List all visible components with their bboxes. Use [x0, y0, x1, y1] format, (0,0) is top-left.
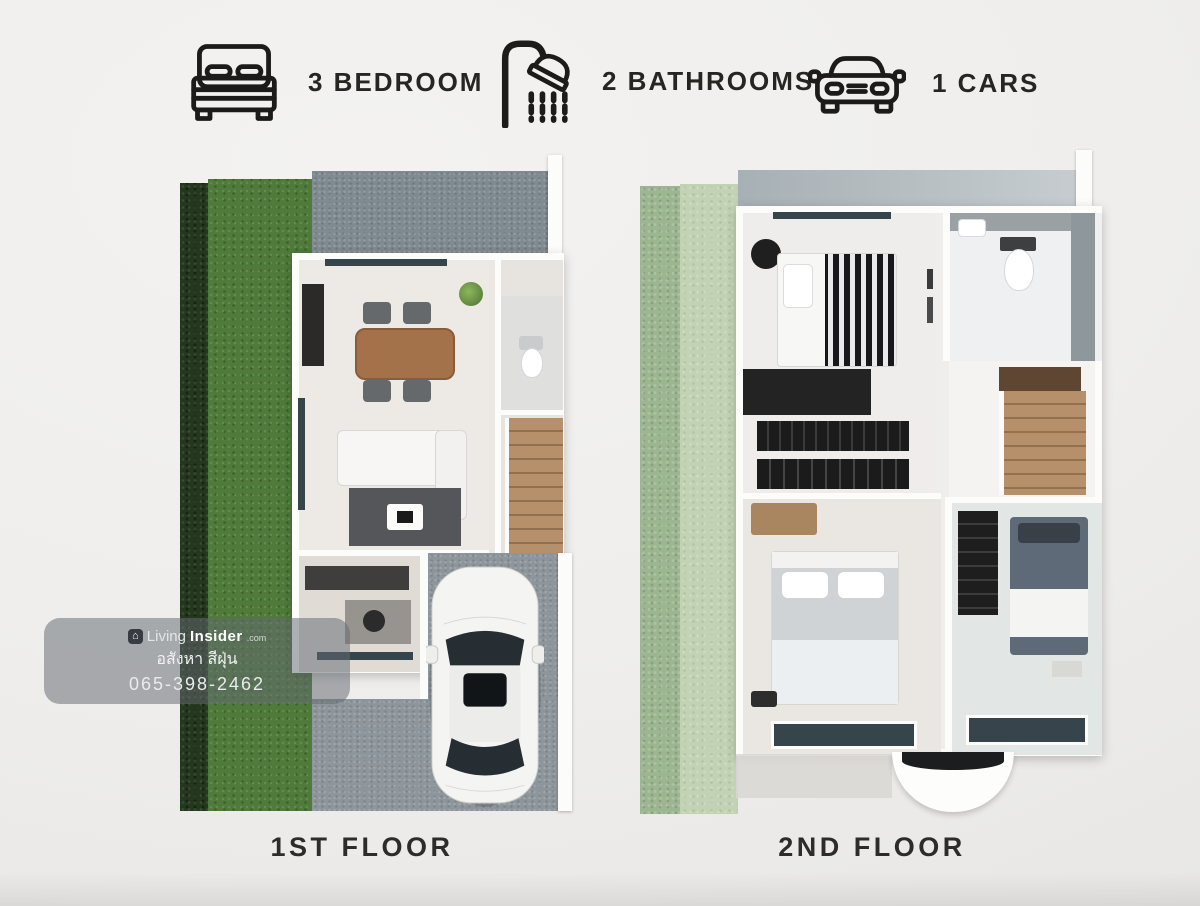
stairwell [949, 361, 1095, 497]
toilet [521, 348, 543, 378]
bedrooms-label: 3 BEDROOM [308, 67, 483, 98]
canopy-arc [902, 752, 1004, 770]
blanket [1010, 589, 1088, 637]
bathroom-2 [943, 213, 1102, 361]
feature-bathrooms: 2 BATHROOMS [494, 34, 814, 128]
kitchen-counter [305, 566, 409, 590]
pillow [838, 572, 884, 598]
bench [751, 691, 777, 707]
master-floor-window [771, 721, 917, 749]
dining-table [355, 328, 455, 380]
house-second-floor [736, 206, 1102, 756]
watermark: ⌂ Living Insider .com อสังหา สีฝุ่น 065-… [44, 618, 350, 704]
car-top-view [426, 561, 544, 811]
master-bed [771, 551, 899, 705]
closet-row [757, 459, 909, 489]
bed-striped-duvet [777, 253, 897, 367]
stair-landing [999, 367, 1081, 393]
shower-icon [494, 34, 576, 128]
wardrobe-dark [743, 369, 871, 415]
duvet [772, 640, 898, 704]
feature-cars: 1 CARS [808, 48, 1039, 118]
faded-lawn [680, 184, 738, 814]
staircase-1 [505, 418, 563, 566]
vanity [751, 503, 817, 535]
cars-label: 1 CARS [932, 68, 1039, 99]
wall-frame [927, 269, 933, 289]
pillow-dark [1018, 523, 1080, 543]
headboard [772, 552, 898, 568]
pillow [782, 572, 828, 598]
faded-hedge-strip [640, 186, 680, 814]
wardrobe-3 [958, 511, 998, 615]
livinginsider-logo-icon: ⌂ [128, 629, 143, 644]
bath-wall-right [1071, 213, 1095, 361]
first-floor-plan [180, 155, 592, 815]
dining-chair [403, 380, 431, 402]
side-cabinet [1052, 661, 1082, 677]
living-room [299, 260, 489, 550]
entrance-canopy [892, 752, 1014, 812]
toilet-2 [1004, 249, 1034, 291]
watermark-brand: ⌂ Living Insider .com [128, 628, 266, 645]
brand-living: Living [147, 628, 186, 645]
bedroom3-floor-window [966, 715, 1088, 745]
walk-in-closet [743, 419, 935, 493]
staircase-2 [999, 391, 1086, 495]
watermark-phone: 065-398-2462 [129, 674, 265, 695]
second-floor-caption: 2ND FLOOR [742, 832, 1002, 863]
bathroom-1 [501, 296, 563, 415]
plant [459, 282, 483, 306]
wall-frame [927, 297, 933, 323]
window-left [298, 398, 305, 510]
desk-chair [363, 610, 385, 632]
dining-chair [363, 380, 391, 402]
watermark-subtitle: อสังหา สีฝุ่น [156, 647, 237, 672]
brand-insider: Insider [190, 628, 243, 645]
bathrooms-label: 2 BATHROOMS [602, 66, 814, 97]
first-floor-caption: 1ST FLOOR [232, 832, 492, 863]
bedroom-3 [945, 497, 1102, 755]
bed-3 [1010, 517, 1088, 655]
car-icon [808, 48, 906, 118]
bedroom-2 [743, 213, 935, 419]
tv-cabinet [302, 284, 324, 366]
dining-chair [363, 302, 391, 324]
page-canvas: 3 BEDROOM 2 BATHROOMS 1 CARS [0, 0, 1200, 906]
pillow [783, 264, 813, 308]
bed-icon [186, 42, 282, 122]
hedge-strip [180, 183, 208, 811]
window-top [325, 259, 447, 266]
sink [958, 219, 986, 237]
exterior-wall-right [558, 553, 572, 811]
exterior-apron [736, 754, 892, 798]
feature-bedrooms: 3 BEDROOM [186, 42, 483, 122]
brand-tld: .com [247, 633, 267, 643]
window-top-2 [773, 212, 891, 219]
closet-row [757, 421, 909, 451]
master-bedroom [743, 493, 941, 755]
dining-chair [403, 302, 431, 324]
tray [397, 511, 413, 523]
second-floor-plan [640, 142, 1102, 814]
